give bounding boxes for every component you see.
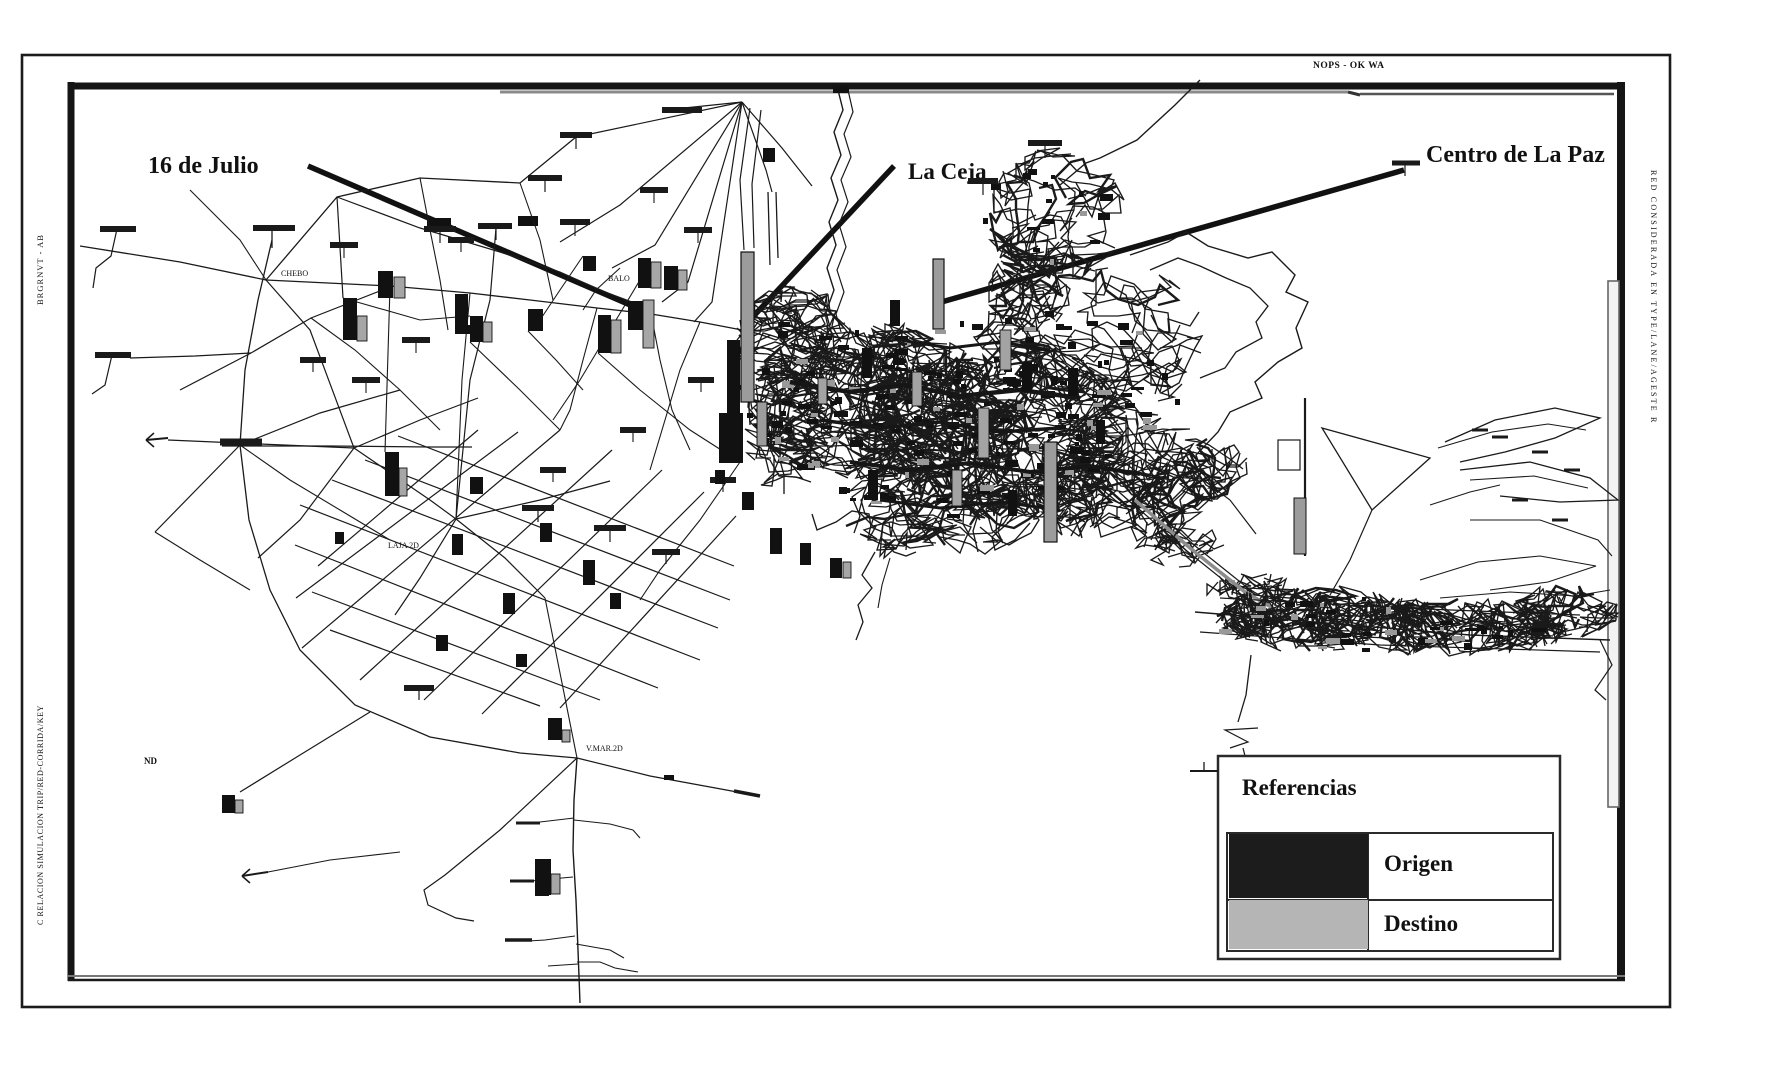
svg-text:BRGRNVT - AB: BRGRNVT - AB [35,234,45,305]
svg-text:CHEBO: CHEBO [281,269,308,278]
svg-text:16 de Julio: 16 de Julio [148,153,259,179]
svg-text:Referencias: Referencias [1242,775,1357,800]
svg-text:C RELACION SIMULACION TRIP/RED: C RELACION SIMULACION TRIP/RED-CORRIDA/K… [36,705,45,925]
svg-text:LAJA 2D: LAJA 2D [388,541,419,550]
svg-text:BALO: BALO [608,274,630,283]
svg-text:Centro de La Paz: Centro de La Paz [1426,142,1605,168]
svg-text:NOPS - OK WA: NOPS - OK WA [1313,61,1385,71]
svg-text:ND: ND [144,756,157,766]
svg-text:RED CONSIDERADA EN TYPE/LANE/A: RED CONSIDERADA EN TYPE/LANE/AGESTE R [1649,170,1658,425]
svg-text:Destino: Destino [1384,911,1458,936]
svg-text:V.MAR.2D: V.MAR.2D [586,744,623,753]
svg-text:Origen: Origen [1384,851,1453,876]
